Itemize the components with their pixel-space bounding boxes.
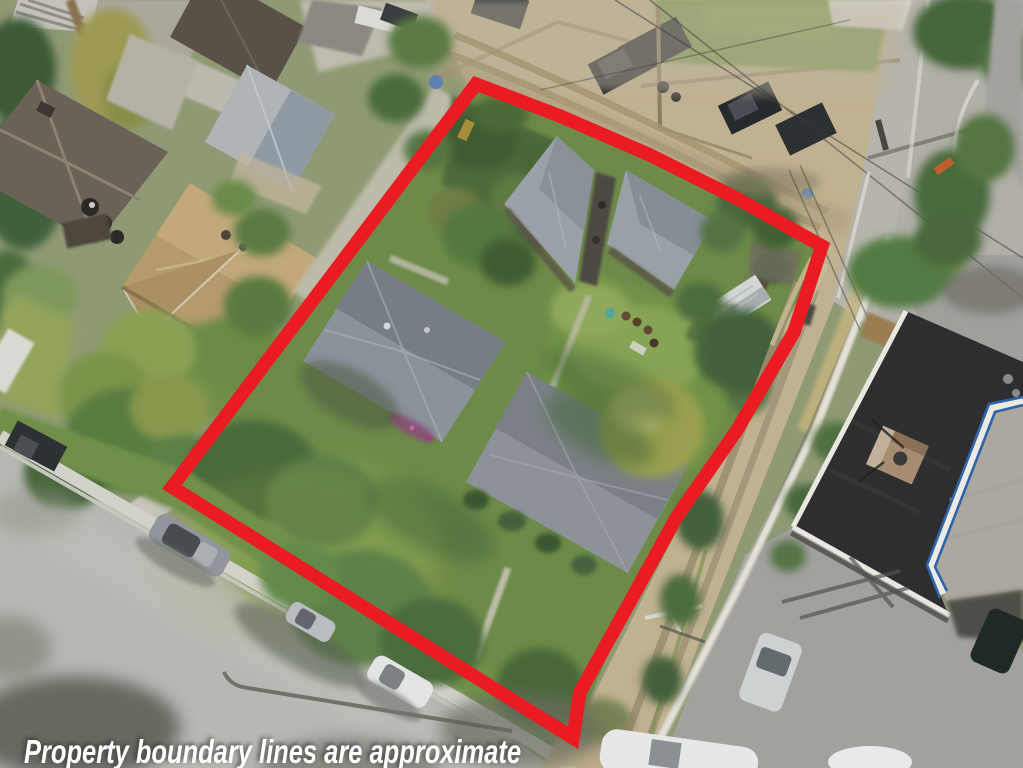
svg-text:Property boundary lines are ap: Property boundary lines are approximate bbox=[24, 733, 521, 768]
